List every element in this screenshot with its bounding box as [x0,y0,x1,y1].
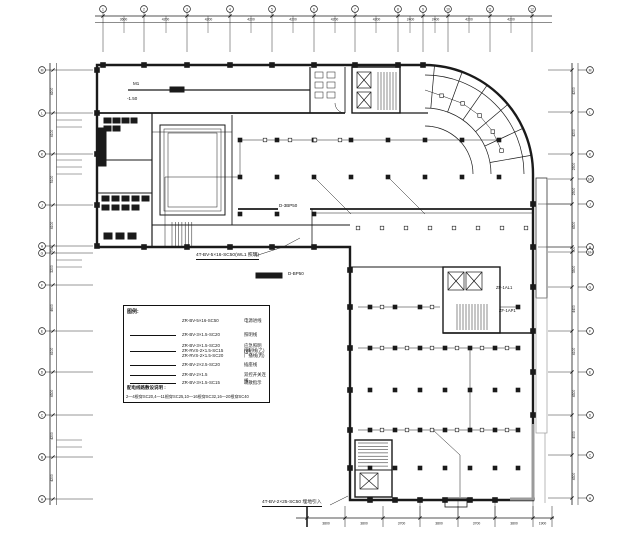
wall-pilaster [368,498,373,503]
floor-plan-svg: 1360024200342004420054200642007420082400… [0,0,621,534]
column [468,388,472,392]
device-box [461,102,465,106]
legend-code: ZR-BV-2×1.5 [182,372,208,377]
column [493,346,497,350]
dim-text: 4100 [50,130,54,138]
dim-text: 4200 [50,432,54,440]
wall-pilaster [531,285,536,290]
legend-line-sample [130,365,176,366]
column [516,466,520,470]
legend-desc: 疏散指示 [244,380,262,386]
wall-pilaster [95,68,100,73]
column [497,175,501,179]
wall-pilaster [95,244,100,249]
device-box [491,130,495,134]
legend-code: ZR-BV-3×1.5-SC20 [182,332,220,337]
legend-desc: 插座线 [244,362,257,368]
column [238,175,242,179]
grid-bubble-label: 2 [143,7,145,11]
column [393,428,397,432]
wall-pilaster [418,498,423,503]
wall-pilaster [468,498,473,503]
column [418,305,422,309]
device-box [430,346,434,350]
device-box [430,428,434,432]
legend-row: ZR-BV-3×1.5-SC20照明线 [128,332,267,338]
device-box [505,428,509,432]
wall-pilaster [348,388,353,393]
dim-text: 4300 [50,390,54,398]
dim-text: 2400 [407,18,415,22]
wall-pilaster [101,63,106,68]
device-box [480,428,484,432]
curved-corner [425,65,532,174]
dim-text: 5100 [50,176,54,184]
column [368,388,372,392]
wall-pilaster [228,245,233,250]
level-label: -1.50 [127,97,137,102]
dim-text: 4100 [50,222,54,230]
dim-text: 4200 [331,18,339,22]
device-box [263,138,267,142]
wall-pilaster [142,63,147,68]
grid-bubble-label: 9 [422,7,424,11]
column [393,466,397,470]
legend-row: ZR-BV-5×16-SC50电源进线 [128,318,267,324]
grid-bubble-label: F [589,329,591,333]
device-box [480,346,484,350]
cad-floor-plan: 1360024200342004420054200642007420082400… [0,0,621,534]
dim-text: 4200 [205,18,213,22]
grid-bubble-label: M [41,68,44,72]
grid-bubble-label: J [589,202,591,206]
device-box [380,346,384,350]
column [238,212,242,216]
dim-text: 4100 [50,348,54,356]
dim-text: 4600 [50,304,54,312]
column [368,466,372,470]
grid-bubble-label: 12 [530,7,534,11]
legend-code: ZR-BV-5×16-SC50 [182,318,219,323]
elevator-shafts [357,72,482,489]
column [393,346,397,350]
grid-bubble-label: L [589,110,591,114]
wall-pilaster [95,152,100,157]
legend-row: ZR-BV-2×1.5双控开关连线 [128,372,267,378]
wall-pilaster [531,329,536,334]
device-box [338,138,342,142]
wall-pilaster [348,346,353,351]
device-box [288,138,292,142]
column [349,138,353,142]
legend-desc: 电源进线 [244,318,262,324]
column [516,346,520,350]
wall-pilaster [421,63,426,68]
grid-bubble-label: J [41,203,43,207]
column [418,428,422,432]
column [275,138,279,142]
legend-code: ZR-BV-2×2.5-SC20 [182,362,220,367]
column [349,175,353,179]
column [312,175,316,179]
legend-line-sample [130,351,176,352]
grid-bubble-label: L [41,111,43,115]
legend-line-sample [130,375,176,376]
dim-text: 700 [50,247,54,253]
column [493,428,497,432]
dim-text: 1900 [539,522,547,526]
dim-text: 3800 [435,522,443,526]
dim-text: 2500 [572,188,576,196]
dim-text: 4200 [50,474,54,482]
device-box [478,114,482,118]
wall-pilaster [142,245,147,250]
column [418,388,422,392]
legend-line-sample [130,335,176,336]
dim-text: 3700 [473,522,481,526]
wall-pilaster [270,63,275,68]
grid-bubble-label: 11 [488,7,492,11]
column [468,466,472,470]
column [238,138,242,142]
building-outline [97,65,547,500]
grid-bubble-label: 7 [354,7,356,11]
grid-bubble-label: 6 [313,7,315,11]
wall-pilaster [348,268,353,273]
column [516,428,520,432]
column [443,346,447,350]
column [418,466,422,470]
dim-text: 4200 [50,88,54,96]
column [468,428,472,432]
column [423,138,427,142]
device-box [440,94,444,98]
legend-row: ZR-BV-2×2.5-SC20插座线 [128,362,267,368]
column [443,388,447,392]
device-box [428,226,432,230]
wall-pilaster [312,245,317,250]
grid-bubble-label: 1/K [587,177,593,181]
column [418,346,422,350]
wall-pilaster [531,245,536,250]
dim-text: 2400 [432,18,440,22]
grid-bubble-label: 1/H [587,250,593,254]
dim-text: 4200 [572,87,576,95]
column [516,305,520,309]
dim-text: 4400 [572,305,576,313]
column [493,466,497,470]
interior-walls [97,67,533,507]
legend-box: 图例: ZR-BV-5×16-SC50电源进线ZR-BV-3×1.5-SC20照… [123,305,270,403]
legend-note-title: 配电线路敷设说明 : [127,385,166,391]
wall-pilaster [353,63,358,68]
dim-text: 3800 [510,522,518,526]
grid-bubble-label: G [589,285,592,289]
device-box [404,226,408,230]
wall-label: D-3BP50 [279,204,297,209]
grid-bubble-label: 4 [229,7,231,11]
grid-bubble-label: 5 [271,7,273,11]
dim-text: 4300 [572,390,576,398]
wall-pilaster [393,498,398,503]
legend-note: 2—4根穿SC20,4—11根穿SC25,10—16根穿SC32,16—20根穿… [126,394,249,400]
grid-bubble-label: 3 [186,7,188,11]
column [312,212,316,216]
dim-text: 3500 [572,266,576,274]
legend-code: ZR-BV-3×1.5-SC15 [182,380,220,385]
device-box [405,428,409,432]
wall-pilaster [348,305,353,310]
column [460,138,464,142]
wall-pilaster [531,413,536,418]
legend-code: ZR-RVS-2×1.5-SC20 [182,353,223,358]
dim-text: 4100 [572,348,576,356]
bottom-annotation: 4T-BV-2×25-SC50 埋地引入 [262,501,322,507]
device-box [455,346,459,350]
column [393,388,397,392]
dim-text: 3800 [360,522,368,526]
wall-pilaster [228,63,233,68]
column [275,175,279,179]
column [386,175,390,179]
legend-title: 图例: [127,308,139,315]
column [497,138,501,142]
device-box [452,226,456,230]
device-box [430,305,434,309]
dim-text: 3600 [120,18,128,22]
legend-row: ZR-RVS-2×1.5-SC20广播线(丙) [128,353,267,359]
dim-text: 4200 [373,18,381,22]
legend-line-sample [130,383,176,384]
dim-text: 4200 [162,18,170,22]
device-box [356,226,360,230]
wall-pilaster [443,498,448,503]
column [443,466,447,470]
legend-desc: 照明线 [244,332,257,338]
device-box [500,149,504,153]
column [468,346,472,350]
column [423,175,427,179]
column [460,175,464,179]
device-box [455,428,459,432]
dim-text: 3200 [50,265,54,273]
device-box [500,226,504,230]
wall-pilaster [95,111,100,116]
wall-pilaster [312,63,317,68]
dim-text: 4200 [572,129,576,137]
column [443,428,447,432]
column [275,212,279,216]
wall-pilaster [493,498,498,503]
grid-bubble-label: 1 [102,7,104,11]
grid-bubble-label: F [41,283,43,287]
panel-label-2: ZF-1AP1 [499,309,516,313]
wall-pilaster [348,466,353,471]
column [386,138,390,142]
column [368,346,372,350]
dist-box-label: D-BP50 [288,272,304,277]
grid-bubble-label: M [589,68,592,72]
column [493,388,497,392]
wall-pilaster [531,202,536,207]
device-box [380,226,384,230]
column [516,388,520,392]
grid-bubble-label: 8 [397,7,399,11]
wiring-circuits [152,90,518,505]
dim-text: 2500 [572,163,576,171]
column [393,305,397,309]
device-box [524,226,528,230]
grid-bubble-label: 10 [446,7,450,11]
column [368,305,372,309]
dim-text: 3700 [398,522,406,526]
device-box [505,346,509,350]
wall-pilaster [531,370,536,375]
panel-label-1: ZF-1AL1 [496,286,512,290]
dim-text: 4000 [572,431,576,439]
device-box [380,428,384,432]
column [368,428,372,432]
legend-desc: 广播线(丙) [244,353,265,359]
generated-cad-detail: 1360024200342004420054200642007420082400… [39,6,594,527]
device-box [313,138,317,142]
wall-pilaster [95,203,100,208]
dim-text: 4300 [572,473,576,481]
wall-pilaster [348,428,353,433]
dim-text: 4300 [572,222,576,230]
wall-pilaster [396,63,401,68]
feeder-annotation: 4T-BV-5×16-SC50(WL1 照明) [196,254,259,260]
device-box [405,346,409,350]
door-label: M1 [133,82,139,87]
grid-bubble-label: G [41,251,44,255]
device-box [476,226,480,230]
wall-pilaster [270,245,275,250]
device-box [380,305,384,309]
dim-text: 3800 [322,522,330,526]
gray-overlay [510,298,547,503]
wall-pilaster [185,63,190,68]
